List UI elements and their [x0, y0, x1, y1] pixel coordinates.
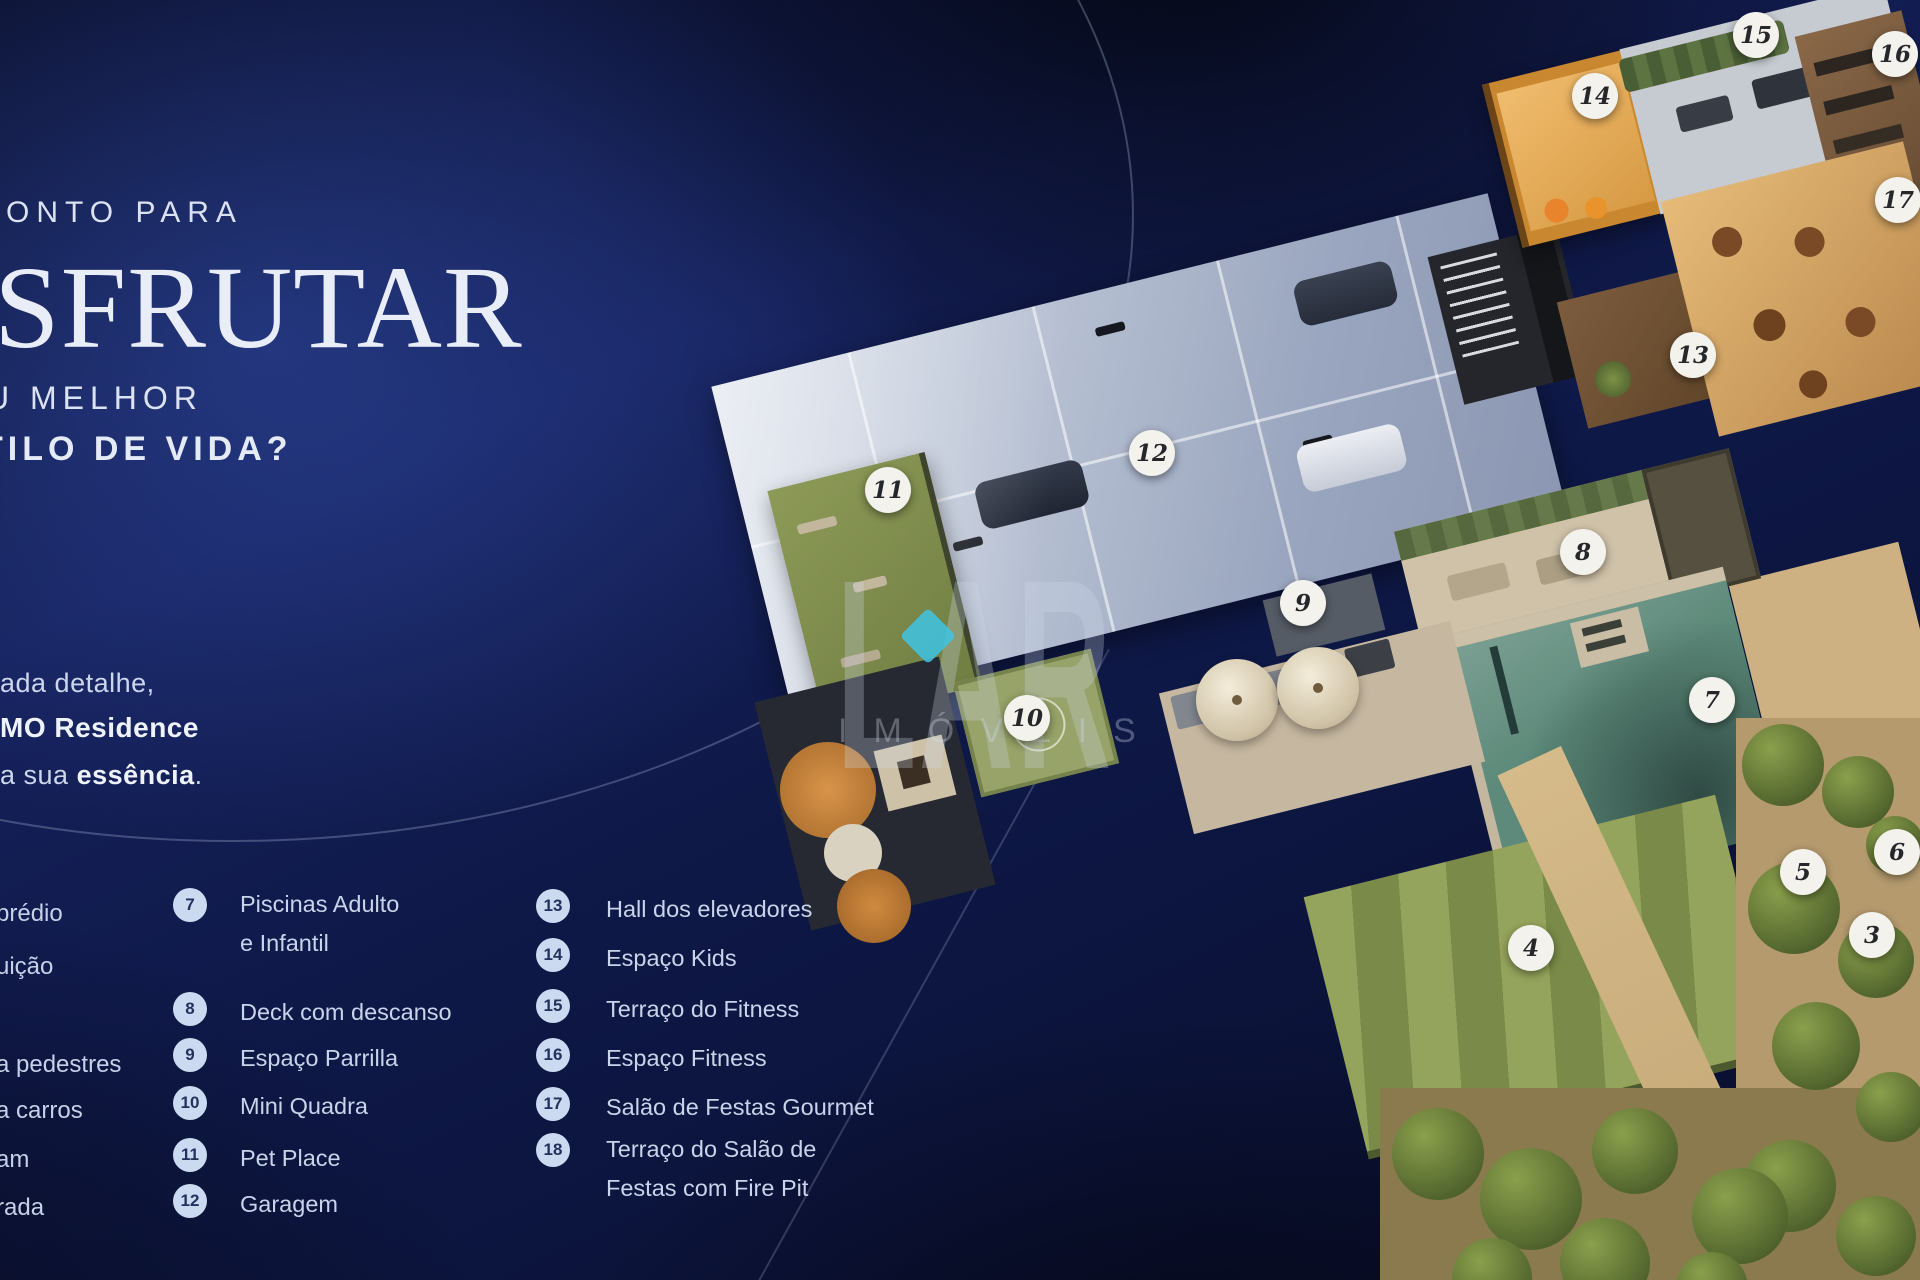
legend-label-7: Piscinas Adulto e Infantil [240, 885, 399, 963]
plan-marker-17: 17 [1875, 177, 1920, 223]
legend-label-13: Hall dos elevadores [606, 890, 812, 929]
legend-fragment: prédio [0, 900, 63, 928]
marketing-page: LAR IMÓVEIS 3 4 5 6 7 8 9 10 11 12 13 14… [0, 0, 1920, 1280]
headline-line1: ONTO PARA [6, 196, 243, 230]
legend-badge-11: 11 [173, 1138, 207, 1172]
watermark-subtitle: IMÓVEIS [838, 712, 1162, 751]
legend-fragment: a carros [0, 1097, 83, 1125]
legend-fragment: rada [0, 1194, 44, 1222]
legend-label-16: Espaço Fitness [606, 1039, 767, 1078]
legend-badge-12: 12 [173, 1184, 207, 1218]
plan-marker-14: 14 [1572, 73, 1618, 119]
legend-badge-10: 10 [173, 1086, 207, 1120]
plan-marker-11: 11 [865, 467, 911, 513]
intro-line3: a sua essência. [0, 760, 203, 791]
plan-marker-7: 7 [1689, 677, 1735, 723]
legend-label-11: Pet Place [240, 1139, 341, 1178]
legend-badge-14: 14 [536, 938, 570, 972]
legend-label-10: Mini Quadra [240, 1087, 368, 1126]
plan-marker-12: 12 [1129, 430, 1175, 476]
plan-marker-3: 3 [1849, 912, 1895, 958]
umbrella-table [1277, 647, 1359, 729]
plan-marker-13: 13 [1670, 332, 1716, 378]
legend-badge-13: 13 [536, 889, 570, 923]
legend-badge-7: 7 [173, 888, 207, 922]
legend-badge-17: 17 [536, 1087, 570, 1121]
headline-line4: TILO DE VIDA? [0, 430, 293, 469]
legend-label-8: Deck com descanso [240, 993, 452, 1032]
umbrella-table [1196, 659, 1278, 741]
legend-badge-16: 16 [536, 1038, 570, 1072]
legend-fragment: a pedestres [0, 1051, 121, 1079]
plan-marker-5: 5 [1780, 849, 1826, 895]
legend-label-12: Garagem [240, 1185, 338, 1224]
legend-badge-15: 15 [536, 989, 570, 1023]
legend-fragment: am [0, 1146, 29, 1174]
plan-marker-8: 8 [1560, 529, 1606, 575]
plan-marker-10: 10 [1004, 695, 1050, 741]
plan-marker-6: 6 [1874, 829, 1920, 875]
watermark-brand: LAR [836, 520, 1113, 830]
legend-fragment: uição [0, 953, 53, 981]
headline-line2: SFRUTAR [0, 240, 523, 376]
legend-label-18: Terraço do Salão de Festas com Fire Pit [606, 1130, 816, 1208]
headline-line3: U MELHOR [0, 380, 203, 417]
legend-label-15: Terraço do Fitness [606, 990, 799, 1029]
plan-marker-9: 9 [1280, 580, 1326, 626]
plan-marker-15: 15 [1733, 12, 1779, 58]
legend-label-17: Salão de Festas Gourmet [606, 1088, 874, 1127]
legend-badge-9: 9 [173, 1038, 207, 1072]
plan-marker-16: 16 [1872, 31, 1918, 77]
legend-badge-8: 8 [173, 992, 207, 1026]
plan-marker-4: 4 [1508, 925, 1554, 971]
legend-label-14: Espaço Kids [606, 939, 737, 978]
legend-badge-18: 18 [536, 1133, 570, 1167]
intro-line2: MO Residence [0, 712, 199, 744]
round-seat-wall [837, 869, 911, 943]
legend-label-9: Espaço Parrilla [240, 1039, 398, 1078]
intro-line1: ada detalhe, [0, 668, 155, 699]
